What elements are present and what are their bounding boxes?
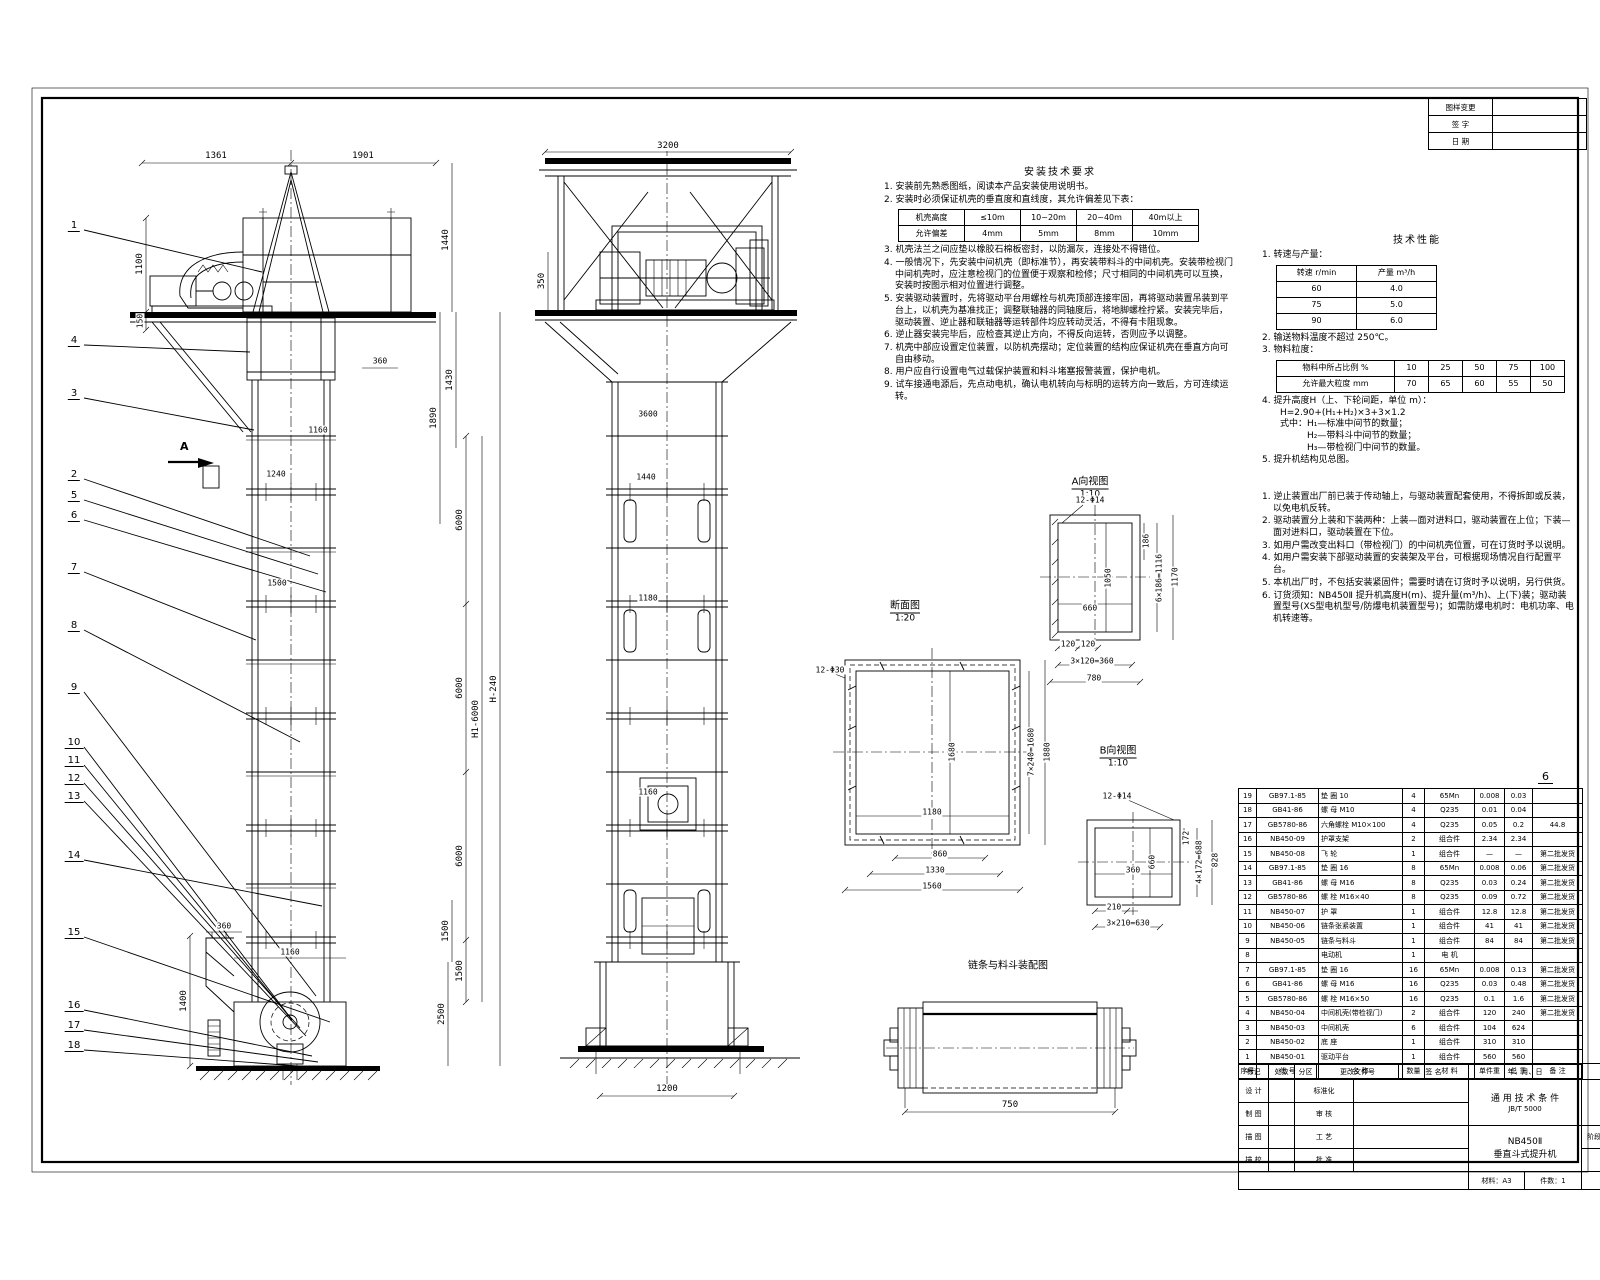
drawing-sheet: 6 图样变更 签 字 日 期 1 4 3 2 5 6 7 8 9 10 11 1… [0,0,1600,1280]
cell-name: 六角螺栓 M10×100 [1319,818,1403,833]
cell-code: NB450-01 [1257,1050,1319,1065]
cell-remark: 第二批发货 [1533,905,1583,920]
dim-label: 360 [1125,866,1141,875]
note-line: 3. 物料粒度： [1262,345,1572,357]
dim-label: 4×172=688 [1195,839,1204,884]
revision-table: 图样变更 签 字 日 期 [1428,98,1587,150]
cell: 签 名 [1399,1064,1469,1080]
note-line: 3. 如用户需改变出料口（带检视门）的中间机壳位置，可在订货时予以说明。 [1262,541,1574,553]
cell-unit-weight: 310 [1475,1035,1505,1050]
cell-total-weight: 84 [1505,934,1533,949]
cell: 4mm [965,226,1021,242]
dim-label: 1160 [279,948,300,957]
cell-no: 3 [1239,1021,1257,1036]
cell-name: 中间机壳 [1319,1021,1403,1036]
install-notes-title: 安装技术要求 [884,166,1236,179]
cell: 5mm [1021,226,1077,242]
cell-material: Q235 [1425,803,1475,818]
cell-qty: 16 [1403,977,1425,992]
cell-total-weight [1505,948,1533,963]
cell-material: 组合件 [1425,1035,1475,1050]
cell-qty: 4 [1403,789,1425,804]
cell-no: 5 [1239,992,1257,1007]
cell-qty: 4 [1403,803,1425,818]
cell-name: 驱动平台 [1319,1050,1403,1065]
revision-value [1493,99,1587,116]
parts-list: 19 GB97.1-85 垫 圈 10 4 65Mn 0.008 0.03 18… [1238,788,1583,1079]
cell-material: Q235 [1425,992,1475,1007]
cell-no: 16 [1239,832,1257,847]
dim-label: H1-6000 [471,699,481,739]
tech-title: 技术性能 [1262,234,1572,247]
bottom-row: 材料：A3 件数：1 共 张 第 张 [1239,1172,1600,1190]
material-cell: 材料：A3 [1469,1172,1525,1190]
cell-code: GB41-86 [1257,803,1319,818]
balloon-13: 13 [65,791,84,803]
cell: 50 [1531,377,1565,393]
revision-label: 图样变更 [1429,99,1493,116]
sig-row: 描 图 工 艺 NB450Ⅱ 垂直斗式提升机 阶段标记 质量 比例 [1239,1126,1600,1149]
note-line: 4. 一般情况下，先安装中间机壳（即标准节），再安装带料斗的中间机壳。安装带检视… [884,258,1236,293]
cell-total-weight: 0.13 [1505,963,1533,978]
table-row: 1 NB450-01 驱动平台 1 组合件 560 560 [1239,1050,1583,1065]
cell-material: Q235 [1425,876,1475,891]
cell: 处数 [1269,1064,1295,1080]
note-line: 5. 安装驱动装置时，先将驱动平台用螺栓与机壳顶部连接牢固，再将驱动装置吊装到平… [884,294,1236,329]
view-scale: 1:20 [890,613,920,624]
cell-total-weight: 310 [1505,1035,1533,1050]
cell: 8mm [1077,226,1133,242]
dim-label: 1160 [637,788,658,797]
cell-no: 11 [1239,905,1257,920]
dim-label: 1170 [1171,566,1180,587]
cell-name: 链条张紧装置 [1319,919,1403,934]
cell-no: 10 [1239,919,1257,934]
cell-name: 链条与料斗 [1319,934,1403,949]
dim-label: 3×120=360 [1069,657,1114,666]
balloon-8: 8 [68,620,80,632]
section-arrow-label: A [180,440,189,453]
cell: 100 [1531,361,1565,377]
balloon-12: 12 [65,773,84,785]
table-row: 8 电动机 1 电 机 [1239,948,1583,963]
balloon-4: 4 [68,335,80,347]
cell-material: 组合件 [1425,905,1475,920]
cell-qty: 1 [1403,847,1425,862]
cell-total-weight: 0.72 [1505,890,1533,905]
install-notes: 安装技术要求 1. 安装前先熟悉图纸，阅读本产品安装使用说明书。2. 安装时必须… [884,166,1236,404]
cell-qty: 2 [1403,1006,1425,1021]
mark-row: 标记 处数 分区 更改文件号 签 名 年、月、日 [1239,1064,1600,1080]
cell-qty: 1 [1403,948,1425,963]
balloon-10: 10 [65,737,84,749]
sheets-cell: 共 张 [1582,1172,1600,1190]
cell-qty: 2 [1403,832,1425,847]
formula-line: 5. 提升机结构见总图。 [1262,455,1572,467]
cell-name: 螺 母 M16 [1319,977,1403,992]
table-row: 90 6.0 [1277,313,1437,329]
dim-label: 828 [1211,852,1220,868]
cell: 60 [1463,377,1497,393]
dim-label: 6×186=1116 [1155,553,1164,603]
cell-qty: 8 [1403,861,1425,876]
dim-label: 3200 [656,141,680,151]
cell: 65 [1429,377,1463,393]
table-row: 17 GB5780-86 六角螺栓 M10×100 4 Q235 0.05 0.… [1239,818,1583,833]
balloon-15: 15 [65,927,84,939]
drum-assembly [884,1002,1136,1115]
sig-blank [1269,1103,1295,1126]
cell-total-weight: 0.06 [1505,861,1533,876]
title-block: 标记 处数 分区 更改文件号 签 名 年、月、日 设 计 标准化 通 用 技 术… [1238,1063,1600,1190]
table-row: 2 NB450-02 底 座 1 组合件 310 310 [1239,1035,1583,1050]
balloon-5: 5 [68,490,80,502]
cell-unit-weight: 0.05 [1475,818,1505,833]
balloon-18: 18 [65,1040,84,1052]
cell-total-weight: 0.48 [1505,977,1533,992]
cell-remark: 第二批发货 [1533,847,1583,862]
cell: 20~40m [1077,210,1133,226]
table-row: 允许最大粒度 mm 70 65 60 55 50 [1277,377,1565,393]
front-elevation-view [130,150,500,1085]
cell: 6.0 [1357,313,1437,329]
note-line: 6. 逆止器安装完毕后，应检查其逆止方向，不得反向运转，否则应予以调整。 [884,330,1236,342]
cell: 50 [1463,361,1497,377]
sig-label: 标准化 [1295,1080,1354,1103]
cell-name: 螺 栓 M16×50 [1319,992,1403,1007]
sig-blank [1354,1103,1469,1126]
note-line: 1. 逆止装置出厂前已装于传动轴上，与驱动装置配套使用，不得拆卸或反装，以免电机… [1262,492,1574,515]
product-name-box: NB450Ⅱ 垂直斗式提升机 [1469,1126,1582,1172]
dim-label: 3×210=630 [1105,919,1150,928]
sig-label: 工 艺 [1295,1126,1354,1149]
cell-remark: 第二批发货 [1533,992,1583,1007]
cell-unit-weight: 84 [1475,934,1505,949]
formula-line: 4. 提升高度H（上、下轮间距，单位 m）： [1262,396,1572,408]
note-line: 8. 用户应自行设置电气过载保护装置和料斗堵塞报警装置，保护电机。 [884,367,1236,379]
cell: 75 [1497,361,1531,377]
sig-row: 设 计 标准化 通 用 技 术 条 件 JB/T 5000 NB450Ⅱ-00 [1239,1080,1600,1103]
cell-code: NB450-07 [1257,905,1319,920]
dim-label: 350 [537,272,547,290]
dim-label: 172 [1182,830,1191,846]
cell: 4.0 [1357,281,1437,297]
sig-label: 设 计 [1239,1080,1269,1103]
dim-label: 1180 [637,594,658,603]
cell-name: 垫 圈 16 [1319,963,1403,978]
cell-material: 电 机 [1425,948,1475,963]
cell-name: 垫 圈 10 [1319,789,1403,804]
cell-total-weight: 0.03 [1505,789,1533,804]
cell-unit-weight: 0.03 [1475,977,1505,992]
dim-label: 1500 [441,919,451,943]
dim-label: 186 [1142,533,1151,549]
cell: 产量 m³/h [1357,265,1437,281]
sig-blank [1354,1080,1469,1103]
cell-no: 14 [1239,861,1257,876]
cell-unit-weight: 120 [1475,1006,1505,1021]
balloon-11: 11 [65,755,84,767]
cell-total-weight: 560 [1505,1050,1533,1065]
cell-remark: 第二批发货 [1533,963,1583,978]
table-row: 5 GB5780-86 螺 栓 M16×50 16 Q235 0.1 1.6 第… [1239,992,1583,1007]
cell-no: 7 [1239,963,1257,978]
balloon-9: 9 [68,682,80,694]
view-b-title: B向视图 1:10 [1100,742,1137,769]
table-row: 7 GB97.1-85 垫 圈 16 16 65Mn 0.008 0.13 第二… [1239,963,1583,978]
dim-label: 150 [136,313,145,329]
cell: 更改文件号 [1317,1064,1399,1080]
dim-label: 1361 [204,151,228,161]
table-row: 12 GB5780-86 螺 栓 M16×40 8 Q235 0.09 0.72… [1239,890,1583,905]
cell-unit-weight: — [1475,847,1505,862]
cell: 75 [1277,297,1357,313]
cell-code [1257,948,1319,963]
cell-total-weight: 0.2 [1505,818,1533,833]
cell-qty: 6 [1403,1021,1425,1036]
cell-no: 9 [1239,934,1257,949]
cell-name: 护罩支架 [1319,832,1403,847]
stage-blank [1582,1149,1600,1172]
cell-total-weight: 624 [1505,1021,1533,1036]
note-line: 6. 订货须知：NB450Ⅱ 提升机高度H(m)、提升量(m³/h)、上(下)装… [1262,591,1574,626]
cell-name: 垫 圈 16 [1319,861,1403,876]
table-row: 15 NB450-08 飞 轮 1 组合件 — — 第二批发货 [1239,847,1583,862]
table-row: 18 GB41-86 螺 母 M10 4 Q235 0.01 0.04 [1239,803,1583,818]
tech-notes: 技术性能 1. 转速与产量： 转速 r/min 产量 m³/h 60 4.0 7… [1262,234,1572,466]
dim-label: 360 [216,922,232,931]
cell-code: NB450-04 [1257,1006,1319,1021]
cell: 转速 r/min [1277,265,1357,281]
note-line: 1. 安装前先熟悉图纸，阅读本产品安装使用说明书。 [884,182,1236,194]
cell-material: Q235 [1425,890,1475,905]
dim-label: 1680 [948,741,957,762]
cell-remark [1533,803,1583,818]
cell: 物料中所占比例 % [1277,361,1395,377]
section-title: 断面图 1:20 [890,597,920,624]
particle-size-table: 物料中所占比例 % 10 25 50 75 100 允许最大粒度 mm 70 6… [1276,360,1565,393]
cell-material: 组合件 [1425,919,1475,934]
view-label: A向视图 [1072,477,1109,488]
cell-remark: 第二批发货 [1533,919,1583,934]
dim-label: 210 [1106,903,1122,912]
speed-table: 转速 r/min 产量 m³/h 60 4.0 75 5.0 90 6.0 [1276,265,1437,330]
dim-label: 1880 [1043,741,1052,762]
cell-total-weight: 2.34 [1505,832,1533,847]
cell-qty: 4 [1403,818,1425,833]
cell-unit-weight: 0.09 [1475,890,1505,905]
side-elevation-view [535,145,800,1099]
table-row: 4 NB450-04 中间机壳(带检视门) 2 组合件 120 240 第二批发… [1239,1006,1583,1021]
dim-label: 660 [1148,854,1157,870]
cell-qty: 1 [1403,934,1425,949]
dim-label: 360 [372,357,388,366]
table-row: 允许偏差 4mm 5mm 8mm 10mm [899,226,1199,242]
cell: 55 [1497,377,1531,393]
revision-label: 日 期 [1429,133,1493,150]
cell-material: 组合件 [1425,847,1475,862]
cell-no: 8 [1239,948,1257,963]
dim-label: 1050 [1104,567,1113,588]
dim-label: 1560 [921,882,942,891]
cell-name: 电动机 [1319,948,1403,963]
cell-code: NB450-05 [1257,934,1319,949]
dim-label: 1100 [135,252,145,276]
table-row: 机壳高度 ≤10m 10~20m 20~40m 40m以上 [899,210,1199,226]
cell-remark [1533,832,1583,847]
table-row: 14 GB97.1-85 垫 圈 16 8 65Mn 0.008 0.06 第二… [1239,861,1583,876]
table-row: 图样变更 [1429,99,1587,116]
cell-no: 12 [1239,890,1257,905]
balloon-leaders [84,230,330,1068]
cell-total-weight: 240 [1505,1006,1533,1021]
formula-line: H=2.90+(H₁+H₂)×3+3×1.2 [1262,408,1572,420]
cell-code: GB5780-86 [1257,890,1319,905]
sig-blank [1269,1080,1295,1103]
note-line: 2. 输送物料温度不超过 250℃。 [1262,333,1572,345]
dim-label: 1430 [445,368,455,392]
cell-remark [1533,1035,1583,1050]
cell-unit-weight: 0.03 [1475,876,1505,891]
dim-label: 12-Φ30 [815,666,846,675]
dim-label: 860 [932,850,948,859]
drum-title: 链条与料斗装配图 [967,957,1049,972]
dim-label: 3600 [637,410,658,419]
cell-material: 组合件 [1425,1021,1475,1036]
stage-label: 阶段标记 [1582,1126,1600,1149]
cell-remark: 第二批发货 [1533,977,1583,992]
dim-label: 12-Φ14 [1102,792,1133,801]
sig-label: 批 准 [1295,1149,1354,1172]
cell-name: 中间机壳(带检视门) [1319,1006,1403,1021]
sig-label: 制 图 [1239,1103,1269,1126]
sig-label: 审 核 [1295,1103,1354,1126]
cell: 90 [1277,313,1357,329]
cell-name: 螺 母 M10 [1319,803,1403,818]
table-row: 3 NB450-03 中间机壳 6 组合件 104 624 [1239,1021,1583,1036]
cell-remark: 第二批发货 [1533,876,1583,891]
dim-label: 1240 [265,470,286,479]
cell-unit-weight: 560 [1475,1050,1505,1065]
product-model: NB450Ⅱ [1508,1137,1543,1147]
table-row: 6 GB41-86 螺 母 M16 16 Q235 0.03 0.48 第二批发… [1239,977,1583,992]
cell-material: 65Mn [1425,789,1475,804]
cell-total-weight: 12.8 [1505,905,1533,920]
cell-qty: 16 [1403,963,1425,978]
dim-label: 1500 [455,959,465,983]
balloon-3: 3 [68,388,80,400]
balloon-1: 1 [68,220,80,232]
cell-unit-weight [1475,948,1505,963]
cell-no: 6 [1239,977,1257,992]
cell-unit-weight: 0.1 [1475,992,1505,1007]
dim-label: 1500 [266,579,287,588]
qty-cell: 件数：1 [1525,1172,1582,1190]
cell-qty: 1 [1403,905,1425,920]
table-row: 物料中所占比例 % 10 25 50 75 100 [1277,361,1565,377]
cell-unit-weight: 0.008 [1475,963,1505,978]
table-row: 75 5.0 [1277,297,1437,313]
cell-code: GB97.1-85 [1257,963,1319,978]
balloon-7: 7 [68,562,80,574]
spec-box: 通 用 技 术 条 件 JB/T 5000 [1469,1080,1582,1126]
dim-label: 750 [1001,1100,1019,1110]
spec-code: JB/T 5000 [1508,1105,1542,1113]
table-row: 11 NB450-07 护 罩 1 组合件 12.8 12.8 第二批发货 [1239,905,1583,920]
view-scale: 1:10 [1100,758,1137,769]
dim-label: 660 [1082,604,1098,613]
dim-label: H-240 [489,674,499,703]
dim-label: 2500 [437,1002,447,1026]
dim-label: 1890 [429,406,439,430]
cell-remark: 第二批发货 [1533,890,1583,905]
cell-remark: 第二批发货 [1533,1006,1583,1021]
table-row: 13 GB41-86 螺 母 M16 8 Q235 0.03 0.24 第二批发… [1239,876,1583,891]
dim-label: 7×240=1680 [1027,727,1036,777]
note-line: 2. 驱动装置分上装和下装两种：上装—面对进料口，驱动装置在上位；下装—面对进料… [1262,516,1574,539]
cell-material: 65Mn [1425,861,1475,876]
revision-value [1493,116,1587,133]
cell-qty: 16 [1403,992,1425,1007]
balloon-17: 17 [65,1020,84,1032]
cell-unit-weight: 12.8 [1475,905,1505,920]
cell-material: 组合件 [1425,1006,1475,1021]
sig-blank [1354,1126,1469,1149]
dim-label: 1901 [351,151,375,161]
cell-no: 17 [1239,818,1257,833]
balloon-6: 6 [68,510,80,522]
cell-qty: 1 [1403,919,1425,934]
sig-label: 描 图 [1239,1126,1269,1149]
cell: 允许偏差 [899,226,965,242]
sig-blank [1269,1126,1295,1149]
cell-material: Q235 [1425,818,1475,833]
cell-remark [1533,1021,1583,1036]
cell: 标记 [1239,1064,1269,1080]
cell-qty: 1 [1403,1050,1425,1065]
cell: 年、月、日 [1469,1064,1582,1080]
note-line: 4. 如用户需安装下部驱动装置的安装架及平台，可根据现场情况自行配置平台。 [1262,553,1574,576]
cell-qty: 1 [1403,1035,1425,1050]
sig-blank [1354,1149,1469,1172]
cell-remark [1533,948,1583,963]
dim-label: 1440 [441,228,451,252]
table-row: 签 字 [1429,116,1587,133]
cell-no: 1 [1239,1050,1257,1065]
cell-qty: 8 [1403,890,1425,905]
table-row: 10 NB450-06 链条张紧装置 1 组合件 41 41 第二批发货 [1239,919,1583,934]
formula-line: H₂—带料斗中间节的数量； [1262,431,1572,443]
table-row: 转速 r/min 产量 m³/h [1277,265,1437,281]
cell-material: 组合件 [1425,934,1475,949]
table-row: 19 GB97.1-85 垫 圈 10 4 65Mn 0.008 0.03 [1239,789,1583,804]
cell-unit-weight: 104 [1475,1021,1505,1036]
cell-code: NB450-06 [1257,919,1319,934]
cell-unit-weight: 2.34 [1475,832,1505,847]
cell-unit-weight: 41 [1475,919,1505,934]
note-line: 5. 本机出厂时，不包括安装紧固件；需要时请在订货时予以说明，另行供货。 [1262,578,1574,590]
cell: 机壳高度 [899,210,965,226]
dim-label: 780 [1086,674,1102,683]
dim-label: 1180 [921,808,942,817]
cell-name: 螺 母 M16 [1319,876,1403,891]
cell-no: 15 [1239,847,1257,862]
balloon-14: 14 [65,850,84,862]
cell-remark: 第二批发货 [1533,934,1583,949]
cell-name: 底 座 [1319,1035,1403,1050]
note-line: 9. 试车接通电源后，先点动电机，确认电机转向与标明的运转方向一致后，方可连续运… [884,380,1236,403]
cell-qty: 8 [1403,876,1425,891]
